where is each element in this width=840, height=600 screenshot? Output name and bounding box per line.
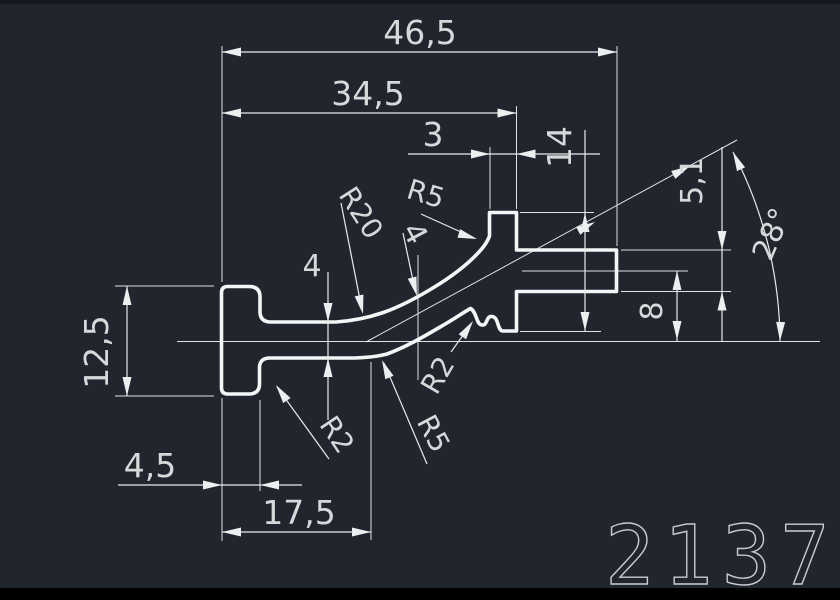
dim-label-flange-width: 4,5 <box>124 446 176 485</box>
drawing-canvas[interactable]: 46,5 34,5 3 14 5,1 8 28° <box>0 0 840 600</box>
dim-label-web-thickness: 4 <box>302 249 321 284</box>
dim-label-overall-width: 46,5 <box>383 13 456 52</box>
dim-label-foot-length: 17,5 <box>262 493 335 532</box>
part-number: 2137 <box>605 509 838 600</box>
dim-label-upper-width: 34,5 <box>331 74 404 113</box>
dim-label-block-height: 14 <box>540 126 579 168</box>
bottom-bar <box>0 588 840 600</box>
dim-label-arm-thickness: 5,1 <box>675 157 710 205</box>
dim-label-flange-height: 12,5 <box>77 315 116 388</box>
top-edge-strip <box>0 0 840 4</box>
dim-label-arm-offset: 8 <box>635 301 670 320</box>
dim-label-tab-width: 3 <box>423 115 444 154</box>
